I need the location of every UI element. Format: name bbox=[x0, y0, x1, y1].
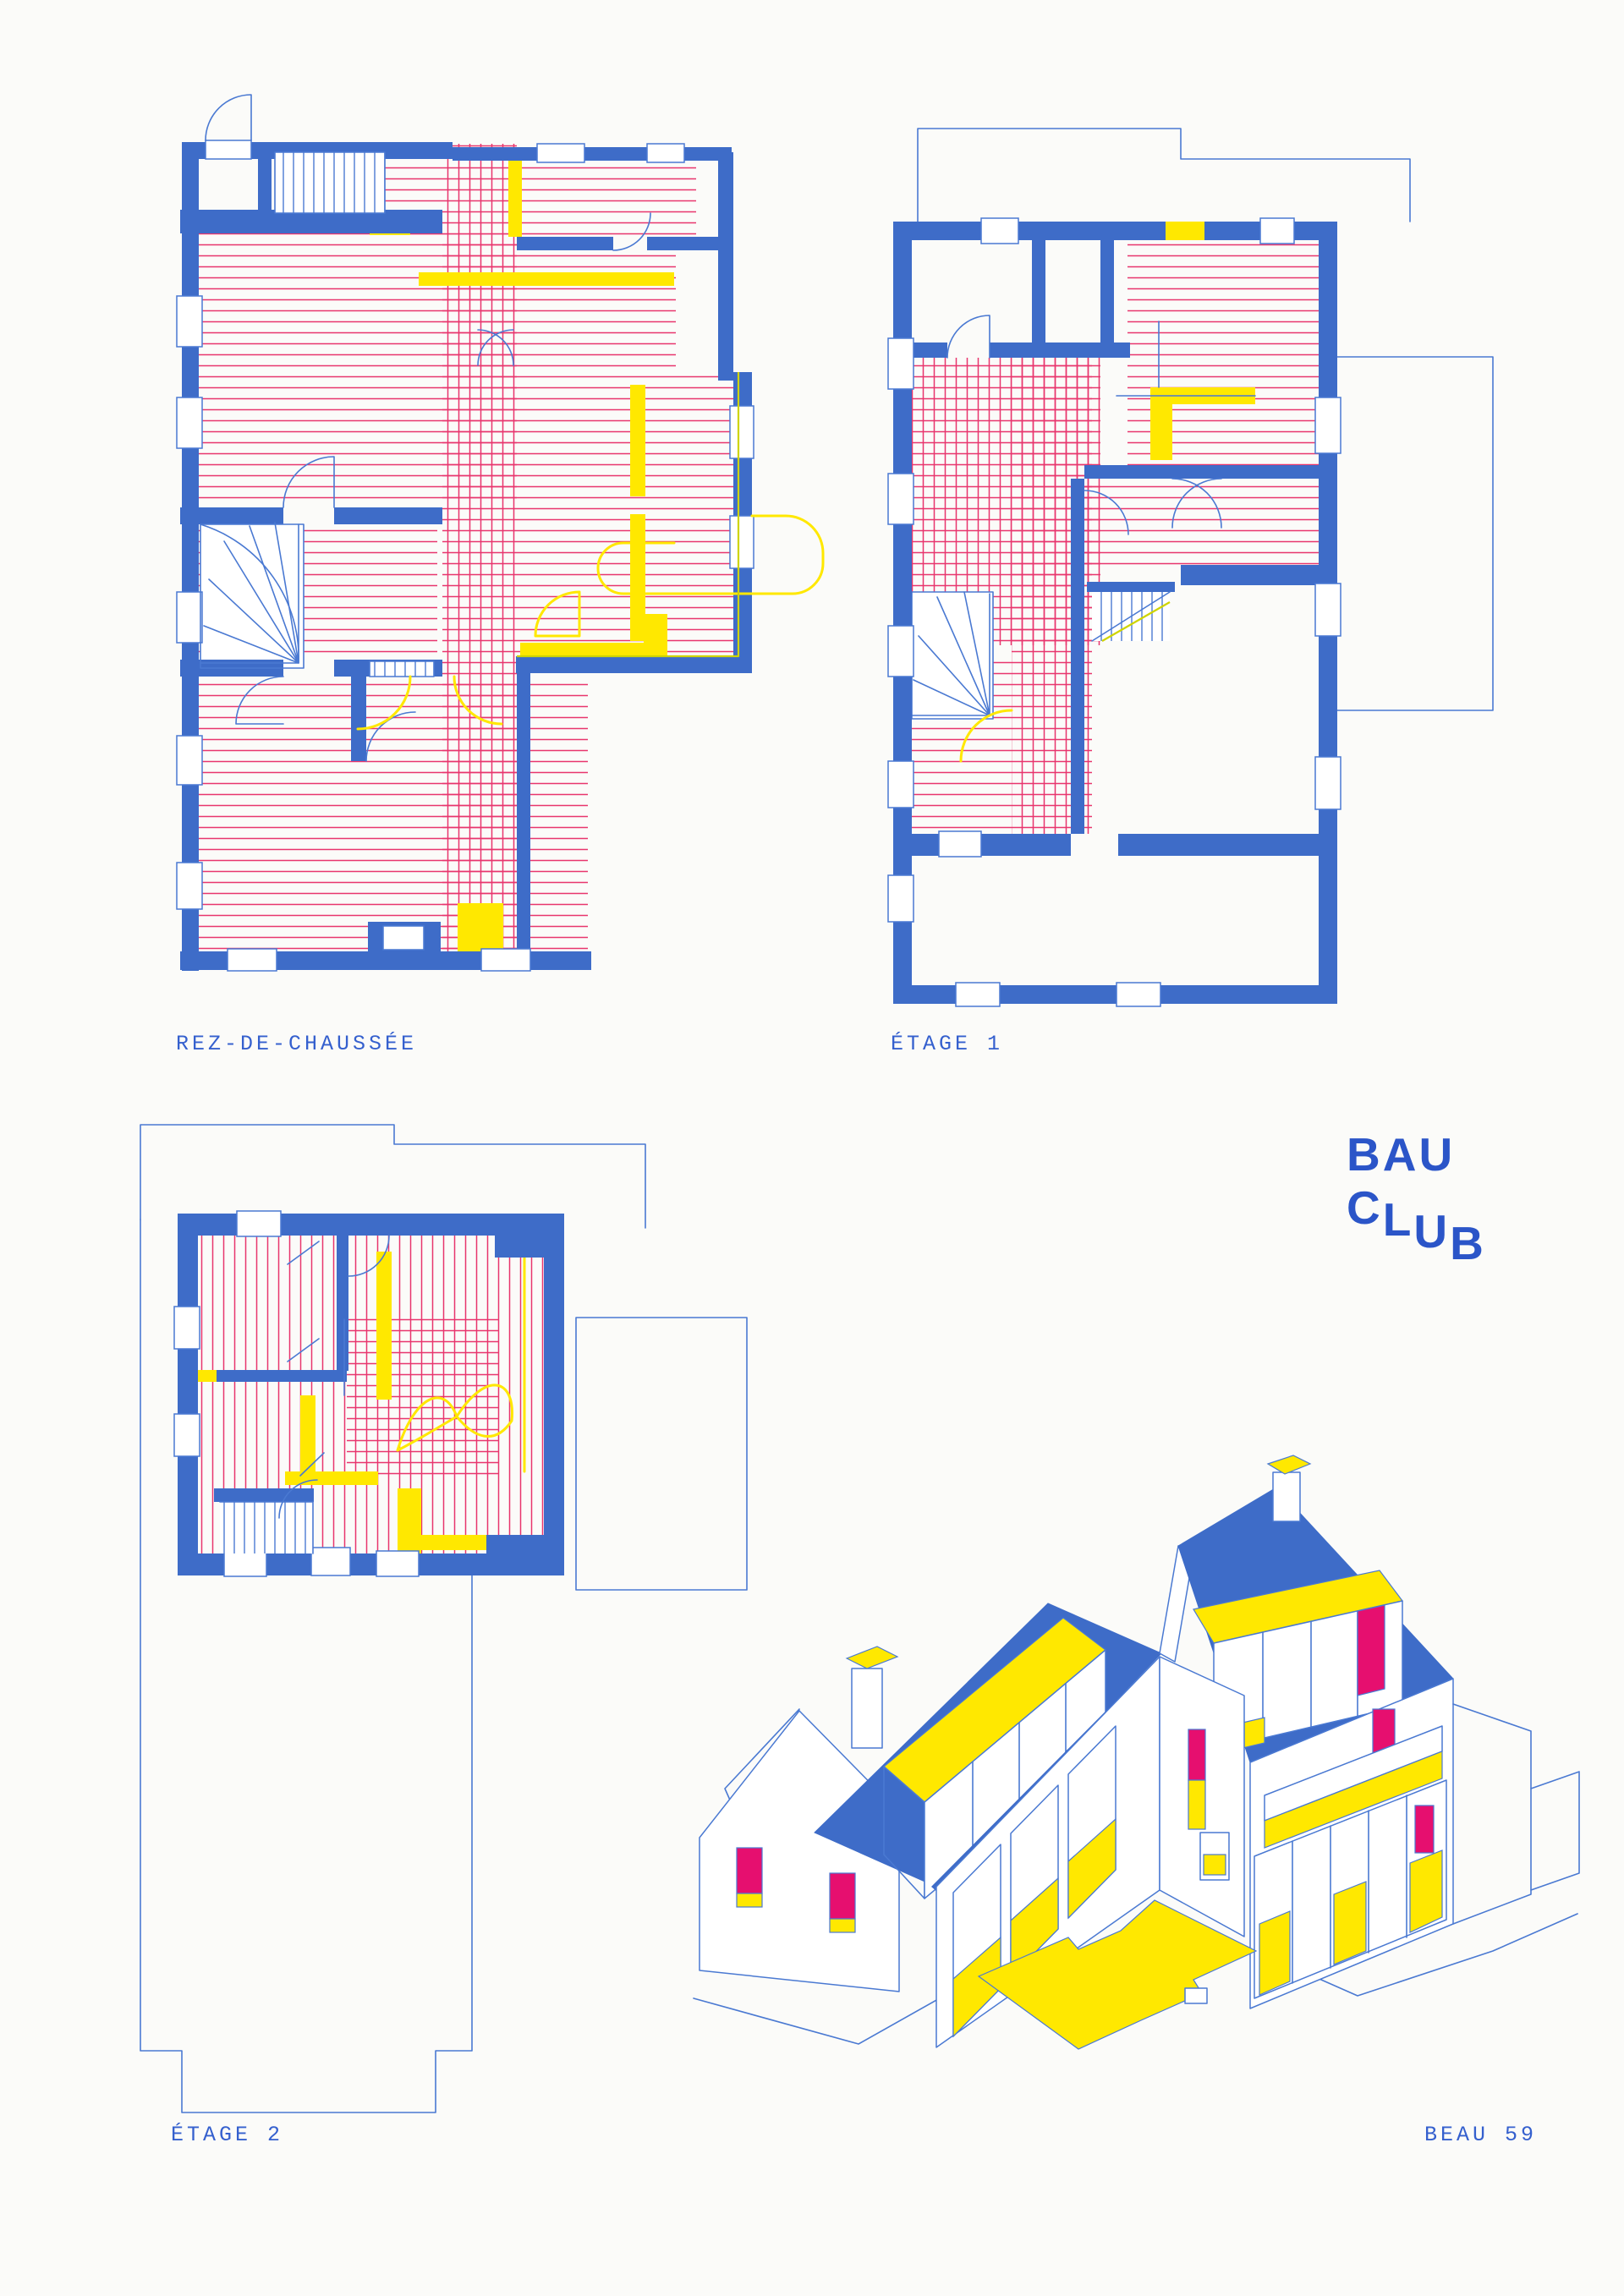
axonometric-house bbox=[681, 1450, 1603, 2118]
plan-rez-de-chaussee-drawing bbox=[156, 66, 859, 1022]
plan-etage-2 bbox=[97, 1116, 774, 2131]
logo-line1: BAU bbox=[1347, 1132, 1566, 1178]
plan-rez-de-chaussee bbox=[156, 66, 859, 1022]
plan-etage-2-drawing bbox=[97, 1116, 774, 2131]
sheet-number: BEAU 59 bbox=[1424, 2123, 1537, 2147]
caption-etage-2: ÉTAGE 2 bbox=[171, 2123, 283, 2147]
bau-club-logo: BAU CLUB bbox=[1347, 1132, 1566, 1231]
plan-etage-1-drawing bbox=[863, 118, 1531, 1032]
caption-etage-1: ÉTAGE 1 bbox=[891, 1032, 1003, 1056]
axonometric-house-drawing bbox=[681, 1450, 1603, 2118]
caption-rez-de-chaussee: REZ-DE-CHAUSSÉE bbox=[176, 1032, 417, 1056]
logo-line2: CLUB bbox=[1347, 1185, 1566, 1231]
sheet: REZ-DE-CHAUSSÉE bbox=[0, 0, 1624, 2296]
plan-etage-1 bbox=[863, 118, 1531, 1032]
